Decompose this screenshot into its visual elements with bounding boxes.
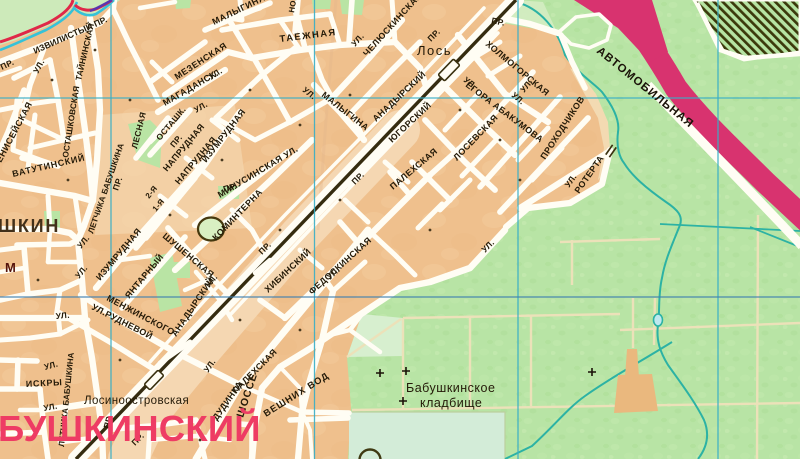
svg-text:Бабушкинское: Бабушкинское (406, 381, 495, 395)
svg-text:Лосиноостровская: Лосиноостровская (84, 395, 189, 407)
svg-text:М: М (5, 260, 16, 275)
svg-text:ИСКРЫ: ИСКРЫ (26, 377, 63, 389)
svg-text:Лось: Лось (417, 43, 452, 58)
svg-text:ШКИН: ШКИН (0, 216, 60, 236)
svg-text:БУШКИНСКИЙ: БУШКИНСКИЙ (0, 407, 261, 449)
svg-text:кладбище: кладбище (420, 396, 482, 410)
svg-text:УЛ.: УЛ. (55, 310, 70, 321)
